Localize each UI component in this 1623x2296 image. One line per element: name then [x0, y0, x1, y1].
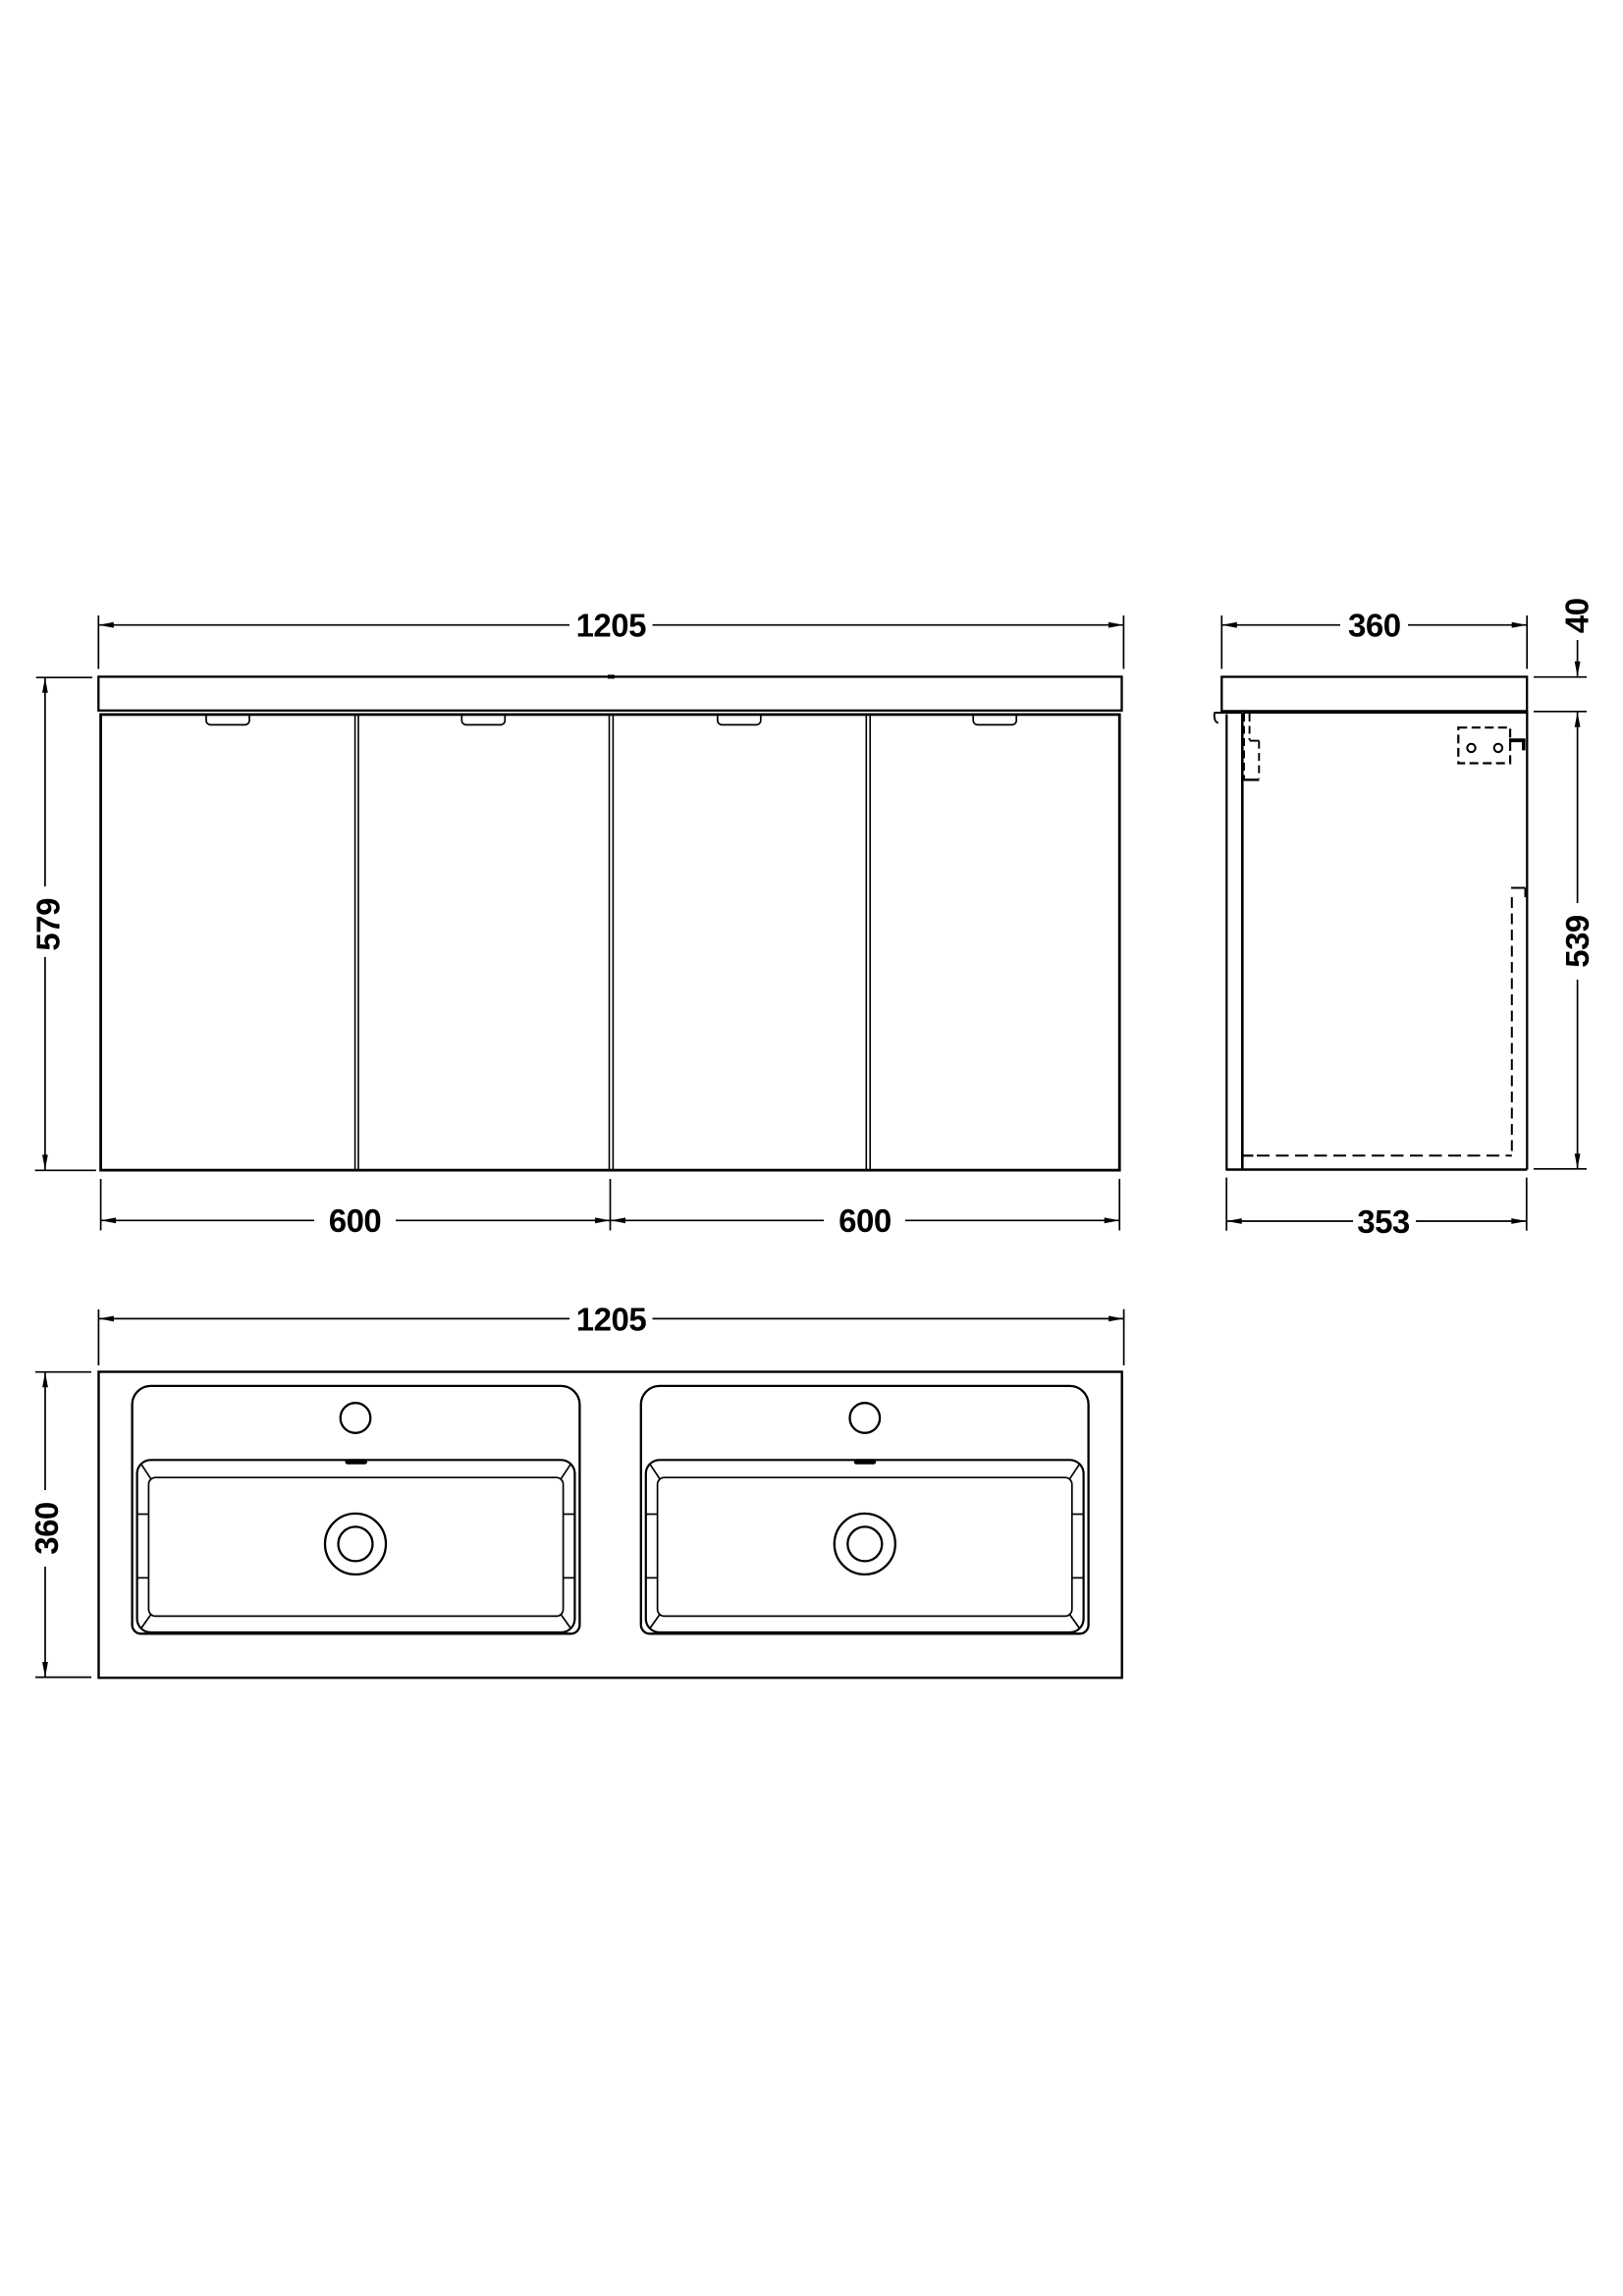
- svg-text:360: 360: [1348, 607, 1401, 643]
- svg-text:579: 579: [30, 898, 67, 951]
- svg-text:1205: 1205: [576, 1301, 647, 1337]
- svg-text:40: 40: [1558, 598, 1595, 633]
- svg-text:1205: 1205: [576, 607, 647, 643]
- svg-text:539: 539: [1559, 915, 1596, 968]
- svg-text:600: 600: [839, 1202, 892, 1239]
- svg-text:353: 353: [1357, 1203, 1410, 1240]
- svg-text:600: 600: [329, 1202, 382, 1239]
- svg-text:360: 360: [28, 1502, 65, 1555]
